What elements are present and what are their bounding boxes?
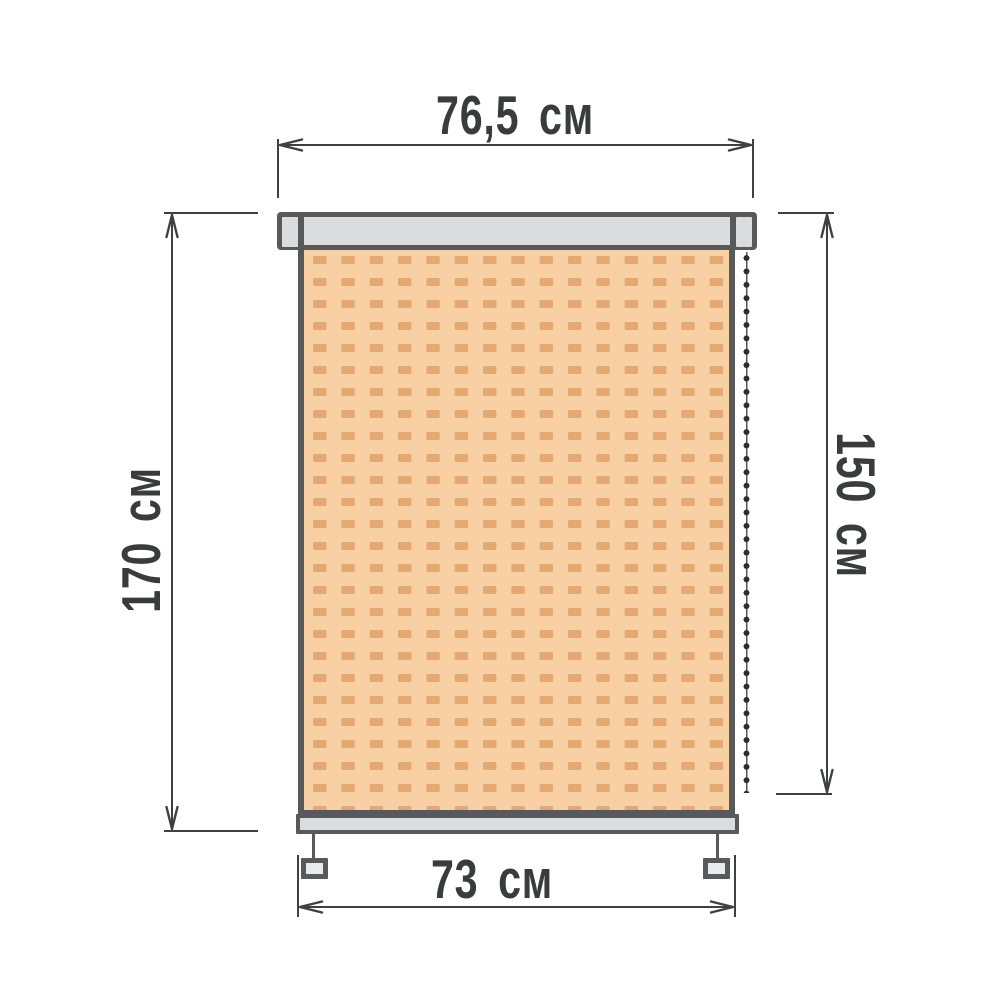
- dimension-label-top-width: 76,5 см: [410, 83, 621, 147]
- dimension-label-left-height: 170 см: [109, 443, 173, 637]
- dimension-label-bottom-width: 73 см: [411, 847, 574, 911]
- dimension-label-right-height: 150 см: [824, 408, 888, 602]
- roller-blind-diagram: 76,5 см 170 см 150 см 73 см: [0, 0, 1000, 1000]
